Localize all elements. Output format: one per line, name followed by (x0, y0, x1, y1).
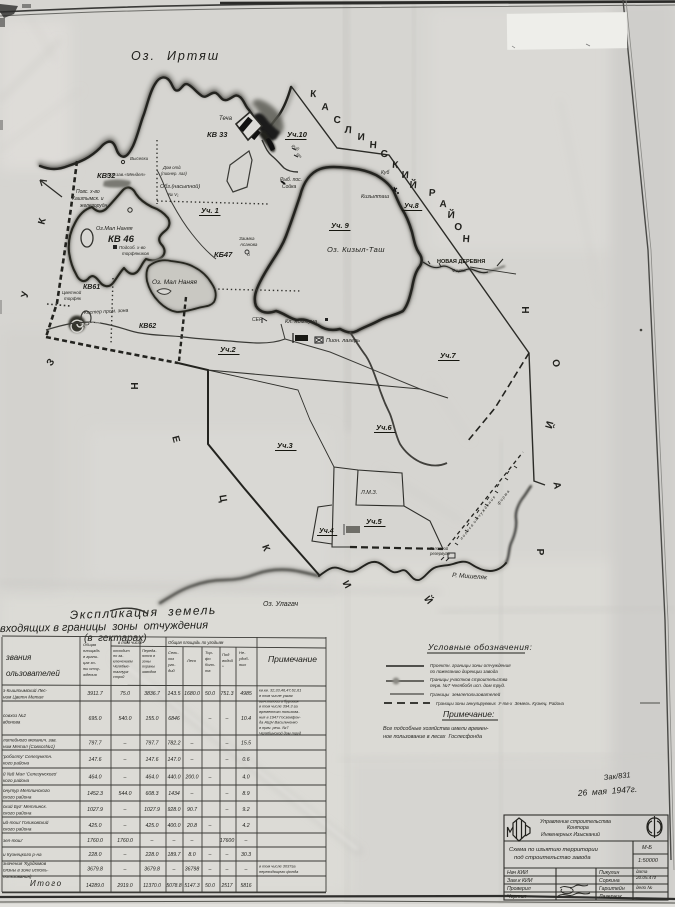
svg-text:4.0: 4.0 (242, 775, 249, 781)
svg-text:Уч.5: Уч.5 (366, 517, 383, 526)
svg-text:Кизылташ: Кизылташ (361, 194, 390, 200)
svg-text:Под: Под (222, 652, 230, 657)
svg-text:1760.0: 1760.0 (117, 838, 133, 844)
svg-text:5078.8: 5078.8 (166, 883, 182, 889)
svg-text:3679.8: 3679.8 (87, 867, 103, 873)
svg-text:Н: Н (519, 306, 530, 313)
svg-text:Примечание:: Примечание: (443, 709, 495, 719)
svg-text:удоб-: удоб- (238, 656, 250, 661)
svg-text:Н: Н (462, 234, 470, 245)
svg-text:Сель-: Сель- (168, 650, 179, 655)
svg-text:(пионер. лаг): (пионер. лаг) (161, 171, 187, 176)
svg-text:14289.0: 14289.0 (86, 883, 104, 889)
svg-text:уго-: уго- (167, 662, 176, 667)
svg-text:–: – (208, 775, 212, 781)
svg-text:Уч. 9: Уч. 9 (331, 221, 350, 230)
svg-text:№ V₁: № V₁ (168, 192, 179, 197)
svg-text:Контора: Контора (567, 825, 589, 831)
svg-text:Рыб. пос.: Рыб. пос. (280, 177, 302, 183)
svg-text:Р: Р (534, 549, 545, 556)
svg-text:Челябме-: Челябме- (113, 665, 131, 669)
svg-text:Все подсобные хозяйства имели: Все подсобные хозяйства имели времен- (383, 725, 489, 732)
svg-text:–: – (225, 741, 229, 747)
svg-text:'роболту' Селезунктн.: 'роболту' Селезунктн. (3, 754, 52, 759)
svg-text:425.0: 425.0 (89, 823, 102, 829)
svg-text:2517: 2517 (220, 883, 232, 889)
svg-text:Нач КИИ: Нач КИИ (507, 870, 528, 876)
svg-text:Л: Л (344, 125, 352, 136)
svg-text:вдонова: вдонова (3, 720, 21, 725)
svg-text:608.3: 608.3 (146, 791, 159, 797)
svg-text:А: А (439, 199, 447, 210)
svg-text:11370.0: 11370.0 (143, 883, 161, 889)
svg-text:1434: 1434 (168, 791, 180, 797)
svg-text:ользователей: ользователей (6, 669, 60, 678)
svg-text:Оз. Кизыл-Таш: Оз. Кизыл-Таш (327, 245, 385, 254)
svg-text:–: – (208, 716, 212, 722)
svg-text:–: – (172, 867, 176, 873)
svg-text:3836.7: 3836.7 (144, 691, 161, 697)
svg-text:Зам.к КИИ: Зам.к КИИ (507, 878, 533, 884)
svg-text:КВ62: КВ62 (139, 323, 156, 330)
svg-text:36798: 36798 (185, 867, 200, 873)
svg-text:фо: фо (205, 656, 211, 661)
svg-text:30.3: 30.3 (241, 852, 251, 858)
svg-text:1:50000: 1:50000 (638, 858, 659, 864)
svg-text:Соркина: Соркина (599, 878, 620, 884)
svg-text:928.0: 928.0 (168, 807, 181, 813)
svg-text:площадь: площадь (83, 648, 100, 653)
svg-text:Пион. лагерь: Пион. лагерь (326, 338, 360, 344)
svg-text:1027.9: 1027.9 (87, 807, 103, 813)
svg-text:С: С (333, 115, 341, 126)
svg-text:8.0: 8.0 (188, 852, 195, 858)
svg-text:–: – (123, 823, 127, 829)
svg-text:звания: звания (5, 653, 32, 662)
svg-text:–: – (123, 807, 127, 813)
svg-text:Проектн. границы зоны отчужден: Проектн. границы зоны отчуждения (430, 663, 511, 668)
svg-text:охраны: охраны (142, 665, 155, 669)
svg-text:в том числе узкая: в том числе узкая (259, 693, 293, 698)
svg-text:4985: 4985 (240, 691, 252, 697)
svg-text:железорудн.: железорудн. (79, 203, 109, 209)
svg-text:–: – (225, 791, 229, 797)
svg-text:797.7: 797.7 (89, 741, 103, 747)
svg-text:–: – (225, 716, 229, 722)
svg-text:–: – (225, 852, 229, 858)
svg-text:–: – (225, 807, 229, 813)
svg-text:8.9: 8.9 (242, 791, 249, 797)
svg-text:20.05.47г: 20.05.47г (635, 875, 657, 880)
svg-text:Л.М.З.: Л.М.З. (360, 490, 377, 496)
svg-text:155.0: 155.0 (146, 716, 159, 722)
svg-text:1760.0: 1760.0 (87, 838, 103, 844)
svg-text:зел-тош': зел-тош' (2, 838, 23, 843)
svg-text:Уч.3: Уч.3 (277, 441, 294, 450)
svg-text:Уч.10: Уч.10 (287, 130, 308, 139)
svg-text:–: – (208, 823, 212, 829)
svg-text:–: – (123, 867, 127, 873)
svg-text:228.0: 228.0 (145, 852, 159, 858)
svg-text:онутур Метлинского: онутур Метлинского (3, 788, 50, 793)
svg-text:Пос.зав.«Мендел»: Пос.зав.«Мендел» (107, 172, 146, 177)
svg-text:544.0: 544.0 (119, 791, 132, 797)
svg-text:Дом отд.: Дом отд. (162, 165, 182, 170)
svg-text:й №8 Мал 'Селезунского': й №8 Мал 'Селезунского' (3, 771, 57, 777)
svg-text:Проверил: Проверил (507, 886, 531, 892)
svg-text:–: – (123, 741, 127, 747)
svg-text:–: – (208, 867, 212, 873)
svg-text:3911.7: 3911.7 (87, 691, 104, 697)
svg-text:торфяников: торфяников (122, 251, 149, 256)
svg-text:Гарштейн: Гарштейн (599, 885, 625, 892)
svg-text:20.8: 20.8 (186, 823, 197, 829)
svg-text:боло-: боло- (205, 662, 216, 667)
svg-text:464.0: 464.0 (146, 775, 159, 781)
svg-text:водой: водой (222, 658, 234, 663)
svg-text:СЕР.: СЕР. (252, 317, 263, 323)
svg-text:КВ 33: КВ 33 (207, 130, 228, 139)
svg-text:Переда-: Переда- (142, 649, 157, 653)
svg-text:кого района: кого района (3, 760, 30, 766)
svg-text:Условные обозначения:: Условные обозначения: (427, 642, 532, 652)
svg-text:з-Кыштымский Лес-: з-Кыштымский Лес- (2, 687, 48, 693)
svg-text:Тор-: Тор- (205, 650, 214, 655)
svg-text:таллург: таллург (113, 670, 128, 674)
svg-text:–: – (190, 757, 194, 763)
svg-text:Кл. Коммуна: Кл. Коммуна (285, 319, 317, 325)
svg-text:Не-: Не- (239, 650, 246, 655)
svg-text:2919.0: 2919.0 (116, 883, 133, 889)
svg-text:6846: 6846 (168, 716, 180, 722)
svg-text:Итого: Итого (30, 879, 63, 888)
svg-text:147.6: 147.6 (89, 757, 102, 763)
svg-text:4.2: 4.2 (242, 823, 249, 829)
svg-text:Оз. Улагач: Оз. Улагач (263, 601, 298, 608)
svg-text:90.7: 90.7 (187, 807, 198, 813)
svg-text:С: С (380, 149, 388, 160)
svg-text:в том числе 3037га: в том числе 3037га (259, 864, 296, 869)
svg-text:Куб: Куб (381, 170, 390, 176)
svg-text:5147.3: 5147.3 (184, 883, 200, 889)
svg-text:ий-тош' Голиковский: ий-тош' Голиковский (3, 819, 49, 825)
svg-text:Общая: Общая (83, 642, 97, 647)
svg-text:олзны в зоне исполь-: олзны в зоне исполь- (3, 867, 49, 872)
svg-text:значения 'Курдюмов: значения 'Курдюмов (2, 861, 47, 866)
svg-text:–: – (150, 838, 154, 844)
svg-text:ное пользование в лесах Госле: ное пользование в лесах Гослесфонда (383, 734, 482, 740)
svg-text:Сойка: Сойка (282, 183, 297, 190)
svg-text:та: та (205, 668, 211, 673)
svg-text:резервуар: резервуар (429, 551, 451, 556)
svg-text:Обз.(насыпной): Обз.(насыпной) (160, 183, 200, 190)
svg-text:КВ 46: КВ 46 (108, 234, 135, 245)
svg-text:–: – (208, 852, 212, 858)
svg-text:50.0: 50.0 (205, 883, 215, 889)
svg-text:1452.3: 1452.3 (87, 791, 103, 797)
svg-text:Пикулин: Пикулин (599, 870, 619, 876)
svg-text:ния в 1947 Госземфон-: ния в 1947 Госземфон- (259, 714, 301, 719)
svg-text:147.0: 147.0 (168, 757, 181, 763)
svg-text:–: – (225, 757, 229, 763)
svg-text:М-Б: М-Б (642, 845, 652, 851)
svg-text:ных: ных (239, 662, 247, 667)
svg-text:Каштымск. и: Каштымск. и (72, 196, 104, 202)
svg-text:Оз. Иртяш: Оз. Иртяш (131, 49, 220, 63)
svg-text:–: – (172, 838, 176, 844)
svg-text:782.2: 782.2 (168, 741, 181, 747)
svg-text:–: – (190, 741, 194, 747)
svg-text:ского района: ского района (3, 826, 32, 832)
svg-text:Уч.6: Уч.6 (376, 423, 393, 432)
svg-text:ский Буг' Метлинск.: ский Буг' Метлинск. (3, 803, 47, 809)
svg-text:Инженерных Изысканий: Инженерных Изысканий (541, 831, 600, 838)
svg-text:О: О (454, 222, 463, 234)
svg-text:ются в: ются в (142, 654, 155, 658)
svg-text:Уч. 1: Уч. 1 (201, 206, 219, 215)
svg-text:5816: 5816 (240, 883, 251, 889)
svg-text:зоны: зоны (141, 659, 151, 663)
svg-text:425.0: 425.0 (146, 823, 159, 829)
svg-text:50.0: 50.0 (205, 691, 215, 697)
svg-text:Чертил: Чертил (507, 894, 526, 900)
svg-text:Челябинской дом труд: Челябинской дом труд (259, 731, 302, 736)
svg-text:переходящего фонда: переходящего фонда (259, 869, 299, 874)
svg-text:цах зо-: цах зо- (83, 660, 97, 665)
svg-text:695.0: 695.0 (89, 716, 102, 722)
svg-text:дело №: дело № (636, 885, 652, 890)
svg-text:И: И (401, 170, 409, 181)
svg-text:строй: строй (113, 675, 125, 679)
svg-text:228.0: 228.0 (88, 852, 102, 858)
svg-text:Р: Р (428, 188, 436, 199)
svg-text:И: И (357, 132, 365, 143)
svg-text:15.5: 15.5 (241, 741, 251, 747)
svg-text:литейного механич. зав.: литейного механич. зав. (2, 737, 57, 743)
svg-text:дата: дата (636, 869, 648, 874)
svg-text:Схема по изъятию территории: Схема по изъятию территории (509, 847, 599, 853)
svg-text:ним Цветн Метал: ним Цветн Метал (3, 695, 44, 700)
svg-text:в прач. реш. №7: в прач. реш. №7 (259, 725, 289, 730)
svg-text:ключением: ключением (113, 659, 133, 663)
svg-text:торфяк: торфяк (64, 296, 82, 301)
svg-text:Уч.2: Уч.2 (220, 345, 237, 354)
svg-text:Повс. х-во: Повс. х-во (76, 189, 100, 195)
svg-text:1027.9: 1027.9 (144, 807, 160, 813)
svg-text:Уч.4: Уч.4 (319, 528, 334, 535)
svg-text:Цветной: Цветной (62, 289, 82, 295)
svg-text:А: А (321, 102, 329, 113)
svg-text:Общая площадь по угодьям: Общая площадь по угодьям (168, 640, 224, 645)
svg-text:Н: Н (369, 140, 377, 151)
svg-text:ним Метал (Совхоз№1): ним Метал (Совхоз№1) (3, 744, 55, 749)
svg-text:ского района: ского района (3, 810, 32, 816)
svg-text:ждения: ждения (82, 672, 98, 677)
svg-text:Уч.7: Уч.7 (440, 351, 457, 360)
svg-text:75.0: 75.0 (120, 691, 130, 697)
svg-text:отходит: отходит (113, 649, 130, 653)
svg-text:–: – (225, 867, 229, 873)
svg-text:Й: Й (409, 178, 417, 191)
svg-text:17600: 17600 (220, 838, 235, 844)
svg-text:10.4: 10.4 (241, 716, 251, 722)
svg-text:9.2: 9.2 (242, 807, 249, 813)
svg-text:464.0: 464.0 (89, 775, 102, 781)
svg-text:Лазерник: Лазерник (598, 894, 622, 900)
svg-text:Лесо: Лесо (186, 658, 197, 663)
svg-text:Оз.Мал Наняя: Оз.Мал Наняя (96, 226, 133, 232)
svg-text:да АЩН Васильченко: да АЩН Васильченко (259, 720, 298, 725)
svg-text:НОВАЯ ДЕРЕВНЯ: НОВАЯ ДЕРЕВНЯ (437, 259, 485, 265)
svg-text:440.0: 440.0 (168, 775, 181, 781)
svg-text:–: – (123, 757, 127, 763)
svg-text:Оз. Мал Наняя: Оз. Мал Наняя (152, 279, 198, 286)
svg-text:797.7: 797.7 (146, 741, 160, 747)
svg-text:по за-: по за- (113, 654, 124, 658)
svg-text:Границы зоны аннулируемых У-т: Границы зоны аннулируемых У-тв-х Земель.… (436, 701, 564, 706)
svg-text:–: – (244, 838, 248, 844)
svg-text:143.5: 143.5 (168, 691, 181, 697)
svg-text:–: – (123, 775, 127, 781)
svg-text:Фщта: Фщта (452, 268, 466, 273)
svg-text:КБ47: КБ47 (214, 250, 233, 259)
svg-text:200.0: 200.0 (185, 775, 199, 781)
svg-text:О: О (247, 252, 250, 257)
svg-text:пользования): пользования) (3, 874, 32, 879)
svg-text:Уч.8: Уч.8 (404, 203, 419, 210)
svg-text:под строительство завода: под строительство завода (514, 855, 591, 861)
svg-text:–: – (244, 867, 248, 873)
svg-text:Границы землепользователей: Границы землепользователей (430, 691, 501, 698)
svg-text:–: – (190, 838, 194, 844)
svg-text:дий: дий (168, 668, 175, 673)
svg-text:временного пользова-: временного пользова- (259, 709, 300, 714)
svg-text:хоз: хоз (167, 656, 174, 661)
svg-text:по пожеланию дирекции завода: по пожеланию дирекции завода (430, 669, 498, 674)
svg-text:Примечание: Примечание (268, 654, 317, 664)
svg-text:в том числе: в том числе (118, 640, 143, 645)
svg-text:189.7: 189.7 (168, 852, 182, 858)
svg-text:перв. №7 Челябобл исп. дом тру: перв. №7 Челябобл исп. дом труд. (430, 683, 505, 688)
svg-text:400.0: 400.0 (168, 823, 181, 829)
svg-text:0.6: 0.6 (242, 757, 249, 763)
svg-text:кв.кв. 32,33,46,47,61,61: кв.кв. 32,33,46,47,61,61 (259, 688, 301, 693)
svg-text:заводов: заводов (141, 670, 156, 674)
svg-text:в грани-: в грани- (83, 654, 99, 659)
svg-text:147.6: 147.6 (146, 757, 159, 763)
svg-text:1680.0: 1680.0 (184, 691, 200, 697)
svg-text:Заимка: Заимка (239, 236, 255, 241)
svg-text:ны отчу-: ны отчу- (83, 666, 101, 671)
svg-text:кого района: кого района (3, 777, 30, 783)
svg-text:751.3: 751.3 (221, 691, 234, 697)
svg-text:–: – (123, 852, 127, 858)
svg-text:ского района: ского района (3, 794, 32, 800)
svg-text:Теча: Теча (219, 116, 233, 122)
svg-text:Н: Н (128, 382, 139, 389)
svg-text:Подсоб. х-во: Подсоб. х-во (119, 245, 146, 250)
svg-text:КВ61: КВ61 (83, 284, 100, 291)
svg-text:–: – (190, 791, 194, 797)
svg-text:Й: Й (447, 208, 455, 221)
svg-text:540.0: 540.0 (119, 716, 132, 722)
svg-text:и Кузнецкого р-на: и Кузнецкого р-на (3, 852, 42, 857)
svg-text:Асанова: Асанова (239, 242, 258, 247)
svg-text:в том числе 394.3 га: в том числе 394.3 га (259, 704, 298, 709)
svg-text:Выселки: Выселки (130, 156, 149, 161)
svg-text:совхоз №2: совхоз №2 (3, 713, 26, 718)
svg-text:3679.8: 3679.8 (144, 867, 160, 873)
svg-text:Границы участков строительства: Границы участков строительства (430, 677, 508, 682)
